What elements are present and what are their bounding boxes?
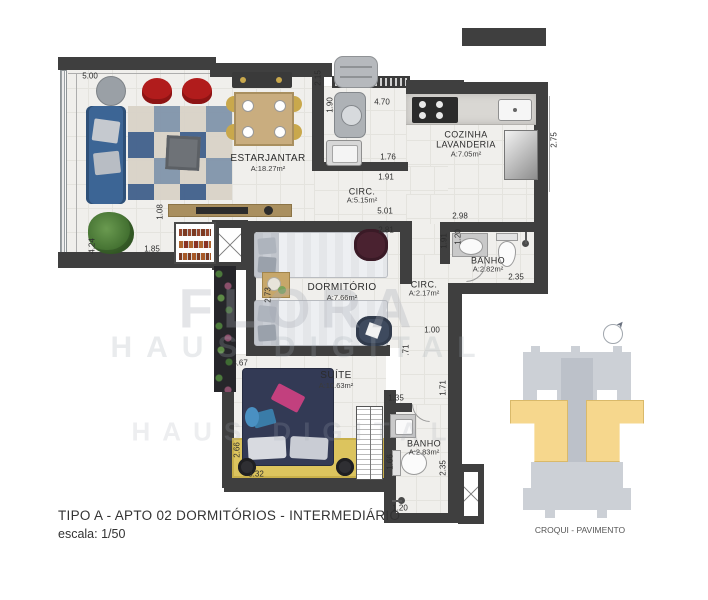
dim-label: 5.01 — [377, 207, 393, 216]
banho2-shower-arm — [392, 500, 402, 502]
dim-label: 3.32 — [248, 470, 264, 479]
room-label-estar: ESTARJANTAR A:18.27m² — [230, 153, 305, 173]
dining-table — [234, 92, 294, 146]
dim-label: 2.73 — [264, 287, 273, 303]
sofa — [86, 106, 126, 204]
croqui-label: CROQUI - PAVIMENTO — [535, 525, 625, 535]
washing-machine — [334, 92, 366, 138]
living-window-left — [60, 70, 67, 254]
room-label-suite: SUÍTE A:10.63m² — [319, 370, 354, 390]
croqui-top-tab — [531, 346, 540, 353]
elevator-shaft-x-icon — [217, 226, 243, 264]
croqui-unit-right — [586, 400, 644, 462]
dim-label: 2.66 — [233, 442, 242, 458]
cooktop — [412, 97, 458, 123]
banho1-shower-arm — [525, 232, 527, 244]
suite-lamp-right — [336, 458, 354, 476]
room-label-dormitorio: DORMITÓRIO A:7.66m² — [308, 282, 377, 302]
dim-label: 2.35 — [508, 273, 524, 282]
fridge — [504, 130, 538, 180]
bookshelf — [174, 222, 216, 264]
wall-suite-bottom — [224, 478, 388, 492]
speaker — [264, 206, 273, 215]
room-label-banho2: BANHO A:2.83m² — [407, 439, 441, 458]
dim-label: .71 — [402, 344, 411, 355]
room-label-banho1: BANHO A:2.82m² — [471, 256, 505, 275]
dim-label: 1.91 — [440, 233, 449, 249]
kitchen-sink — [498, 99, 532, 121]
dim-label: 2.98 — [452, 212, 468, 221]
croqui-key-plan: ➤ CROQUI - PAVIMENTO — [505, 318, 655, 538]
watermark-line2: HAUS DIGITAL — [110, 331, 489, 365]
dim-label: 1.76 — [380, 153, 396, 162]
croqui-unit-left — [510, 400, 568, 462]
dim-label: 1.08 — [156, 204, 165, 220]
dim-label: 1.91 — [378, 173, 394, 182]
dim-label: 1.90 — [326, 97, 335, 113]
dim-label: 2.35 — [439, 460, 448, 476]
wall-banho2-top — [384, 403, 412, 412]
dim-label: 4.24 — [88, 238, 97, 254]
banho1-toilet-tank — [496, 233, 518, 241]
coffee-table — [165, 135, 201, 171]
dim-label: 4.70 — [374, 98, 390, 107]
plan-title: TIPO A - APTO 02 DORMITÓRIOS - INTERMEDI… — [58, 508, 400, 523]
north-arrow-icon: ➤ — [603, 324, 623, 344]
dim-label: 1.71 — [439, 380, 448, 396]
croqui-bottom-tab — [597, 510, 607, 518]
plan-scale: escala: 1/50 — [58, 527, 400, 541]
room-label-circ1: CIRC. A:5.15m² — [347, 187, 377, 206]
dim-label: 2.75 — [550, 132, 559, 148]
armchair-red-1 — [142, 78, 172, 104]
duct-shaft-x-icon — [462, 470, 480, 518]
dim-label: 5.00 — [82, 72, 98, 81]
dim-label: 1.00 — [424, 326, 440, 335]
room-label-circ2: CIRC. A:2.17m² — [409, 280, 439, 299]
dim-label: 3.67 — [232, 359, 248, 368]
dim-label: 2.81 — [378, 226, 394, 235]
wall-top-a — [58, 57, 216, 70]
dim-label: 2.15 — [314, 70, 323, 86]
wall-kitchen-top — [408, 82, 536, 94]
room-label-cozinha: COZINHA LAVANDERIA A:7.05m² — [436, 129, 496, 158]
croqui-top-tab — [571, 346, 580, 353]
dim-label: 1.35 — [388, 394, 404, 403]
dim-label: 1.66 — [386, 454, 395, 470]
laundry-tank — [326, 140, 362, 166]
dim-label: 1.20 — [454, 229, 463, 245]
dim-line-left — [76, 74, 77, 252]
sideboard — [232, 72, 292, 88]
side-table-round — [96, 76, 126, 106]
dim-label: 1.85 — [144, 245, 160, 254]
title-block: TIPO A - APTO 02 DORMITÓRIOS - INTERMEDI… — [58, 508, 400, 541]
tv — [196, 207, 248, 214]
condenser-unit — [334, 56, 378, 88]
floor-plan-sheet: FLORA HAUS DIGITAL HAUS DIGITAL ESTARJAN… — [0, 0, 708, 600]
croqui-top-tab — [613, 346, 622, 353]
croqui-bottom-base — [523, 488, 631, 510]
croqui-bottom-tab — [545, 510, 555, 518]
kitchen-lower-floor — [406, 194, 536, 224]
armchair-red-2 — [182, 78, 212, 104]
wall-right-kitchen — [534, 82, 548, 294]
wall-top-right-block — [462, 28, 546, 46]
